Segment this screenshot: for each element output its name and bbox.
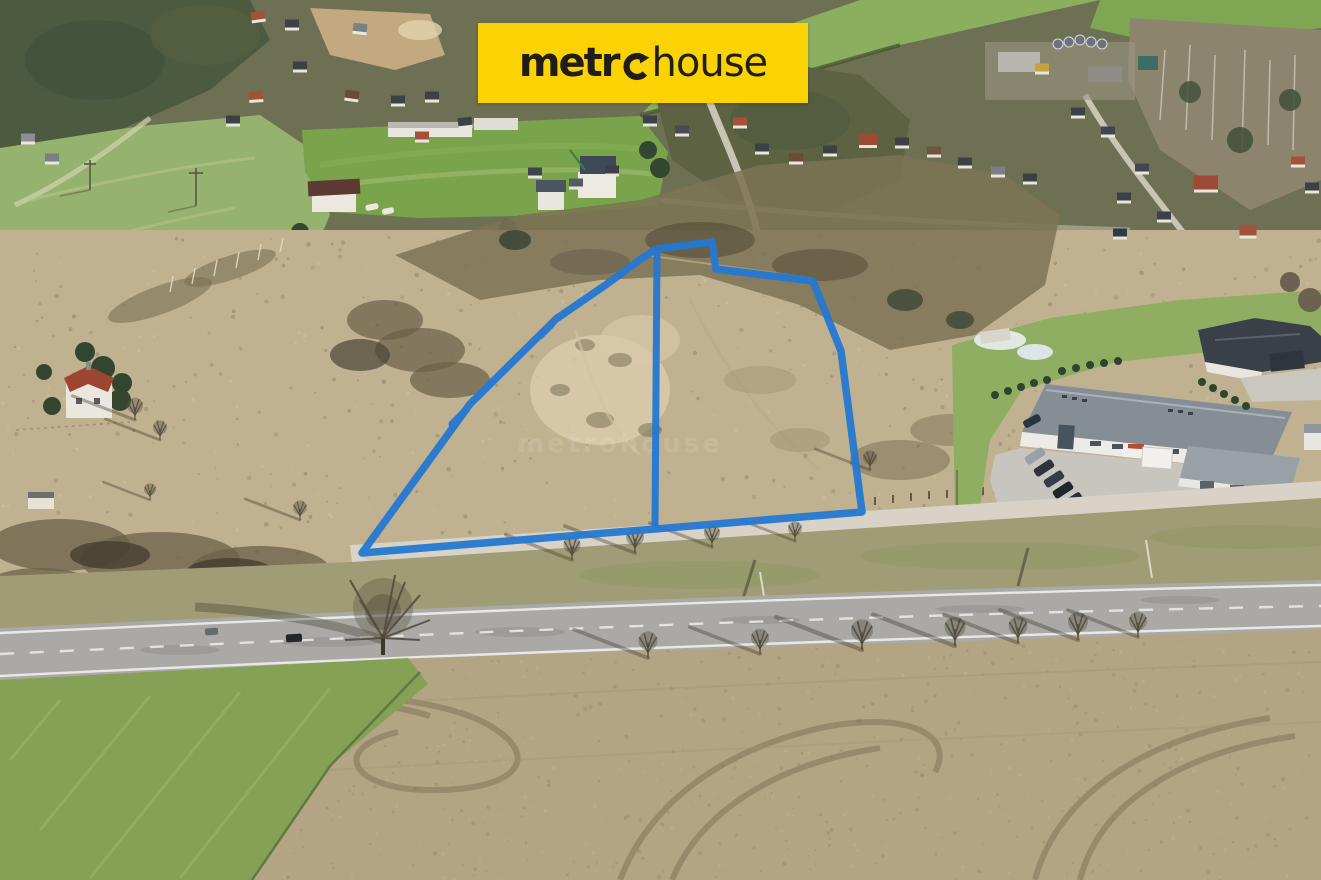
house <box>21 134 35 145</box>
house <box>1117 193 1131 204</box>
house <box>1291 157 1305 168</box>
house <box>823 146 837 157</box>
house <box>895 138 909 149</box>
house <box>643 116 657 127</box>
house <box>927 147 941 158</box>
photo-watermark: metrohouse <box>517 429 723 459</box>
house <box>249 91 264 103</box>
canopy <box>1141 447 1172 469</box>
house <box>1071 108 1085 119</box>
house <box>293 62 307 73</box>
house <box>1305 183 1319 194</box>
house <box>755 144 769 155</box>
metrohouse-logo-banner: metr house <box>478 23 808 103</box>
silo-plant <box>985 35 1158 100</box>
house <box>789 154 803 165</box>
company-sign <box>1128 444 1144 449</box>
house <box>226 116 240 127</box>
logo-text-metr: metr <box>519 43 619 83</box>
house <box>859 134 877 148</box>
house <box>1240 226 1257 239</box>
metrohouse-o-arrow-icon <box>620 51 651 82</box>
house <box>344 90 359 103</box>
house <box>675 126 689 137</box>
house <box>285 20 299 31</box>
red-roof-house <box>308 179 361 212</box>
aerial-photo: metrohouse <box>0 0 1321 880</box>
house <box>605 166 619 177</box>
house <box>391 96 405 107</box>
house <box>1101 127 1115 138</box>
car-on-road <box>205 628 218 636</box>
house <box>991 167 1005 178</box>
logo-text-house: house <box>652 43 768 83</box>
car-on-road <box>286 633 303 642</box>
house <box>1135 164 1149 175</box>
house <box>1035 64 1049 75</box>
house <box>458 117 473 129</box>
house <box>45 154 59 165</box>
house <box>958 158 972 169</box>
listing-photo-canvas: metrohouse <box>0 0 1321 880</box>
house <box>352 23 367 35</box>
house <box>1113 229 1127 240</box>
house <box>1023 174 1037 185</box>
house <box>415 132 429 143</box>
house <box>1157 212 1171 223</box>
plot-divider-line <box>655 250 657 527</box>
house <box>250 11 265 24</box>
house <box>733 118 747 129</box>
house <box>528 168 542 179</box>
house <box>569 179 583 190</box>
car <box>1122 448 1143 458</box>
house <box>425 92 439 103</box>
glass-entrance <box>1057 424 1075 449</box>
house <box>1194 176 1218 193</box>
